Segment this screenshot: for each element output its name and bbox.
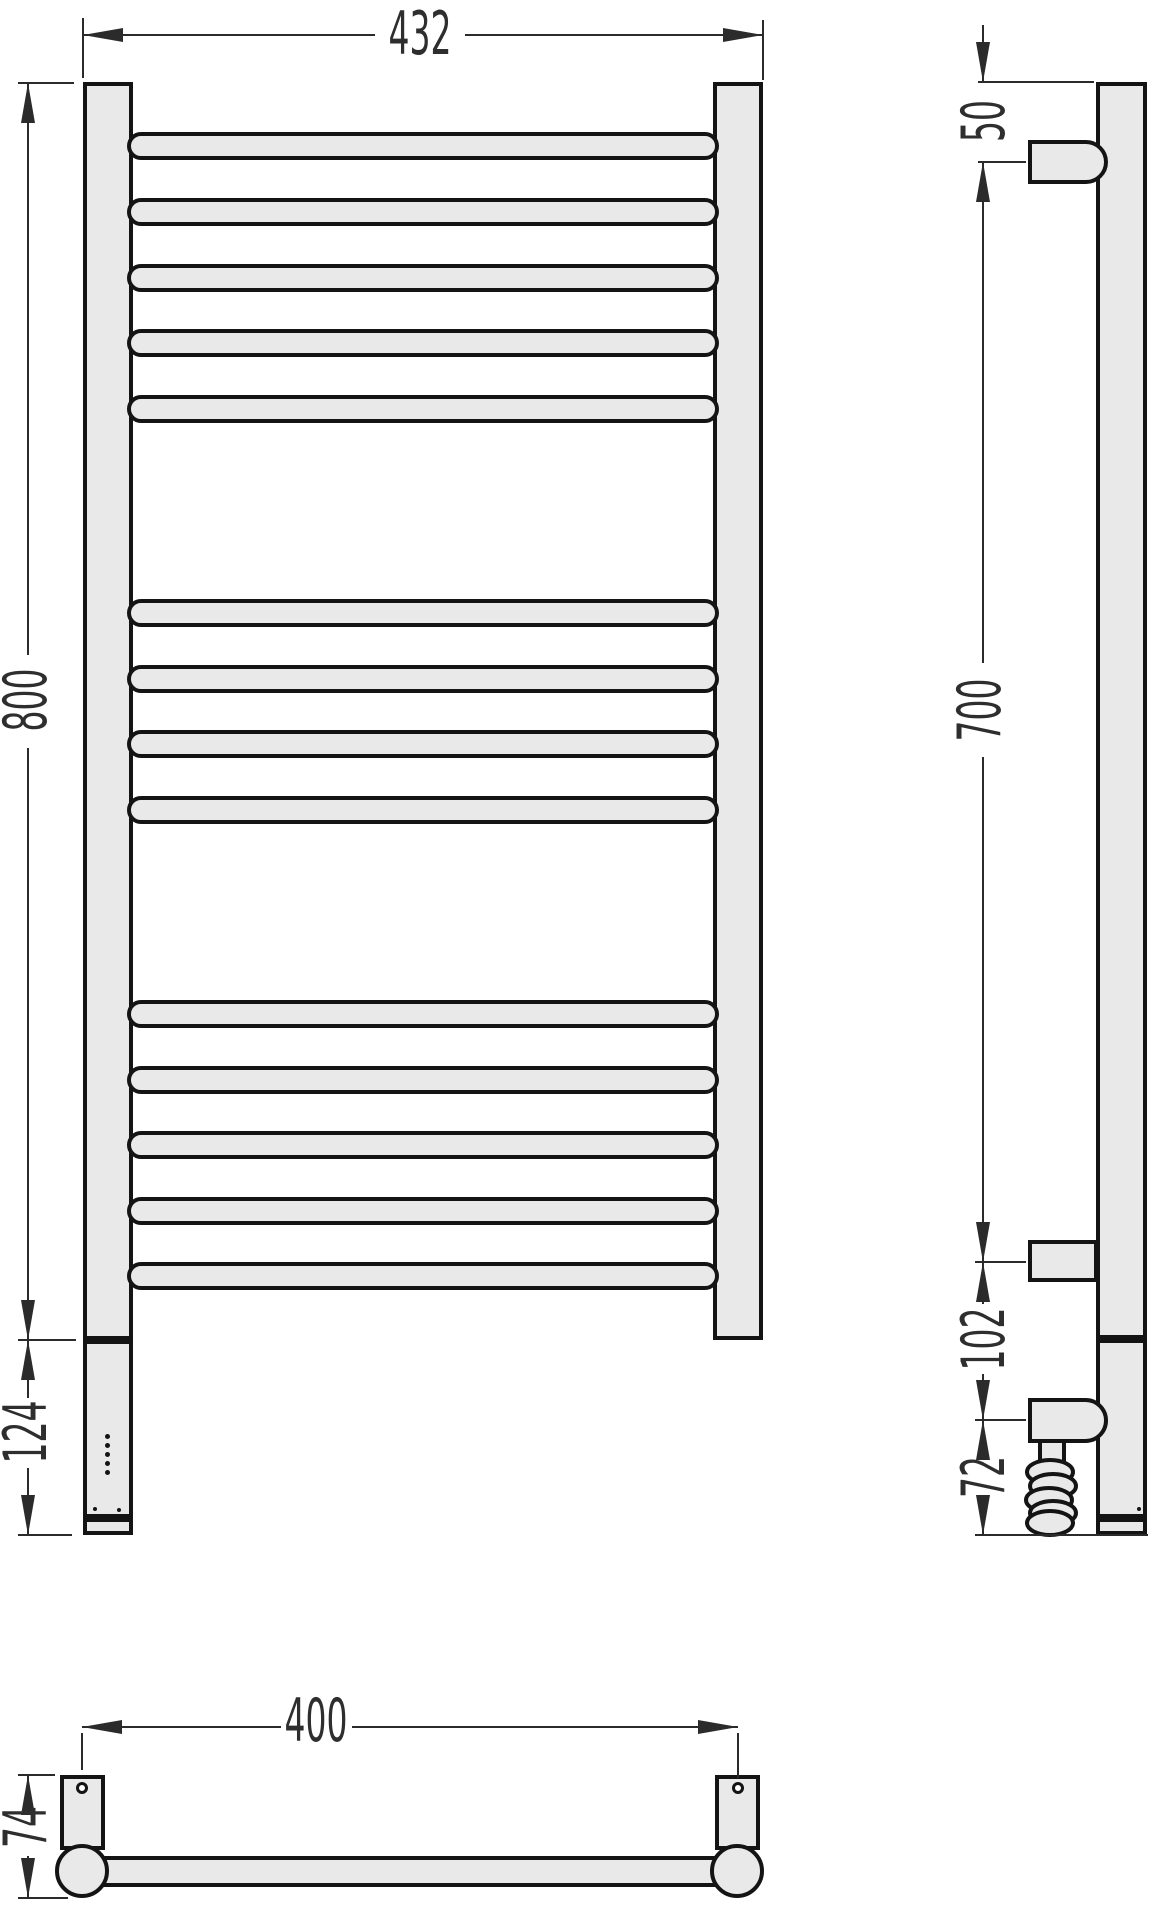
dim-label-overall-width: 432	[389, 4, 452, 64]
dim-label-bracket-spacing: 700	[950, 679, 1010, 742]
dimension-overlay	[0, 0, 1168, 1920]
dim-label-control-box-height: 124	[0, 1401, 56, 1464]
dim-label-top-to-bracket: 50	[954, 100, 1014, 142]
dim-label-overall-height: 800	[0, 669, 56, 732]
dim-label-bracket-to-heater: 102	[954, 1308, 1014, 1371]
drawing-canvas: 432 800 124 50 700 102 72 400 74	[0, 0, 1168, 1920]
dim-label-cable-zone: 72	[954, 1456, 1014, 1498]
dim-label-depth: 74	[0, 1806, 56, 1848]
dim-label-mount-hole-spacing: 400	[285, 1691, 348, 1751]
dim-400-lines	[82, 1720, 738, 1778]
